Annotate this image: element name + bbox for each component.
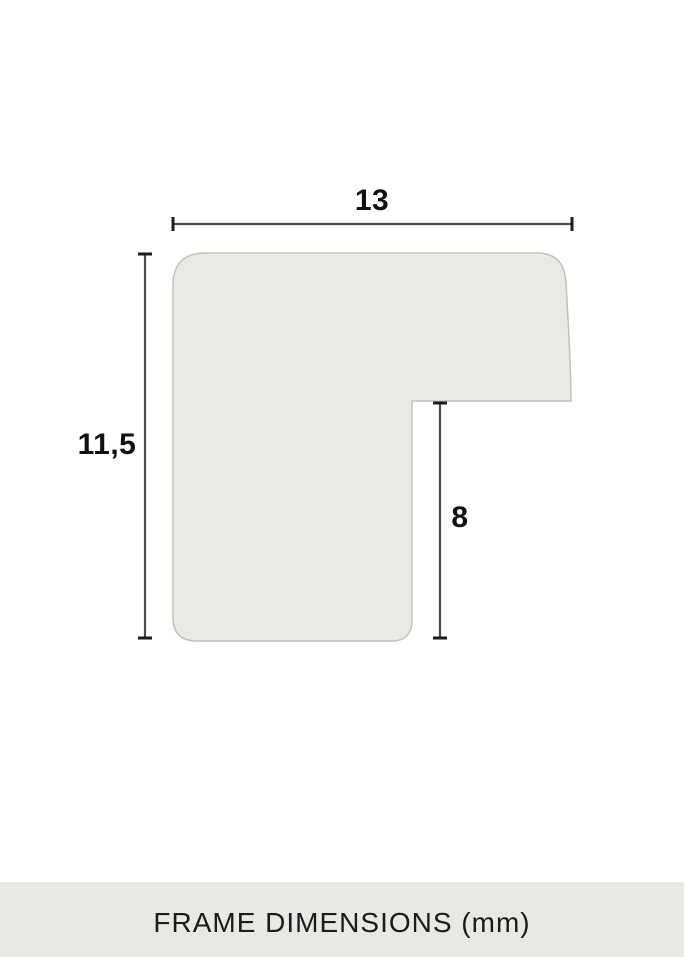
width-dimension-line xyxy=(173,217,572,231)
diagram-canvas xyxy=(0,0,684,957)
height-dimension-line xyxy=(138,254,152,638)
footer-caption-bar: FRAME DIMENSIONS (mm) xyxy=(0,882,684,957)
rabbet-dimension-label: 8 xyxy=(451,503,468,533)
footer-caption-title: FRAME DIMENSIONS (mm) xyxy=(153,907,530,939)
frame-profile-shape xyxy=(173,253,571,641)
width-dimension-label: 13 xyxy=(355,186,389,216)
frame-dimensions-diagram: 13 11,5 8 FRAME DIMENSIONS (mm) xyxy=(0,0,684,957)
rabbet-dimension-line xyxy=(433,403,447,638)
height-dimension-label: 11,5 xyxy=(78,430,137,460)
